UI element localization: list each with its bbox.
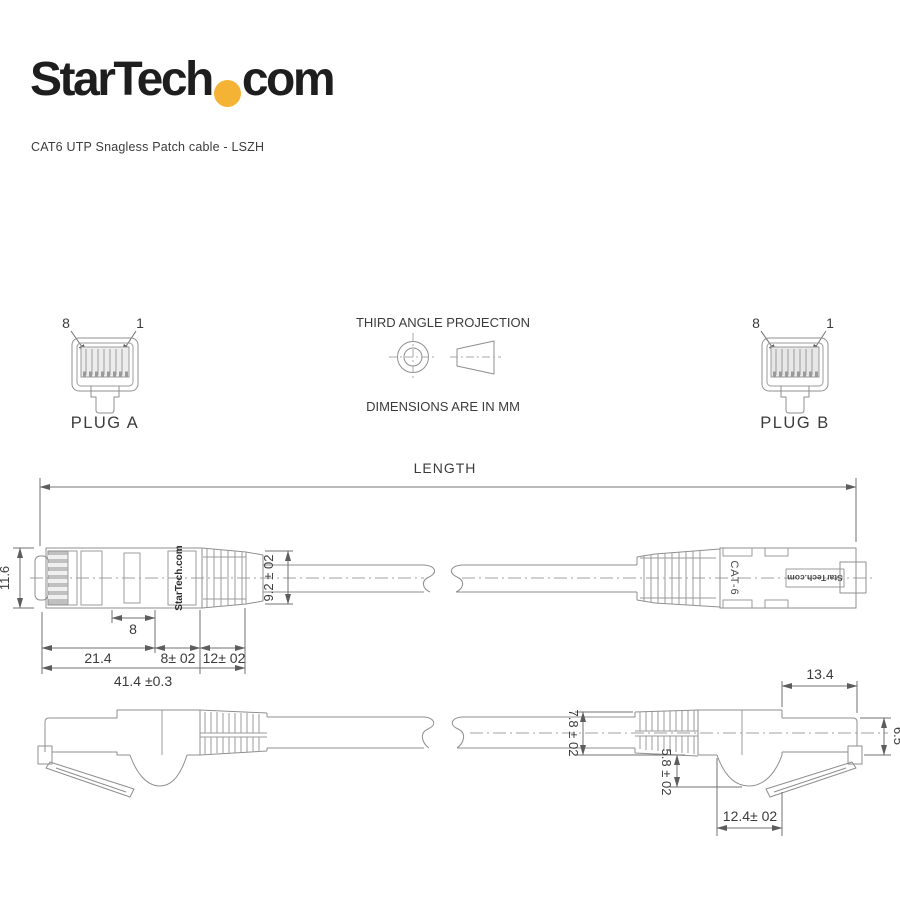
dim-latch-window: 8 bbox=[112, 610, 155, 653]
plug-b-side-latch-lever bbox=[766, 762, 856, 797]
svg-text:6.5: 6.5 bbox=[891, 727, 900, 745]
plug-b-cat6-marking: CAT-6 bbox=[728, 560, 740, 595]
length-dimension: LENGTH bbox=[40, 460, 856, 546]
svg-text:12± 02: 12± 02 bbox=[203, 650, 246, 666]
plug-b-side-boot-ribs bbox=[635, 711, 698, 755]
length-label: LENGTH bbox=[414, 460, 477, 476]
plug-b-pin1-label: 1 bbox=[826, 315, 834, 331]
svg-text:11.6: 11.6 bbox=[0, 566, 12, 590]
projection-symbol: THIRD ANGLE PROJECTION DIMENSIONS ARE IN… bbox=[356, 315, 530, 414]
dim-connector-height: 11.6 bbox=[0, 548, 34, 608]
dim-overall-length: 41.4 ±0.3 bbox=[42, 668, 245, 689]
svg-text:41.4 ±0.3: 41.4 ±0.3 bbox=[114, 673, 172, 689]
plug-b-pin8-label: 8 bbox=[752, 315, 760, 331]
projection-crosshair bbox=[389, 333, 437, 381]
top-cable-break-left bbox=[423, 565, 434, 592]
dim-nose-height: 6.5 bbox=[860, 718, 900, 755]
svg-text:8: 8 bbox=[129, 621, 137, 637]
plug-a-brand-marking: StarTech.com bbox=[174, 545, 185, 610]
side-view-drawing: 7.8 ± 02 5.8 ± 02 12.4± 02 13.4 6.5 bbox=[38, 666, 900, 836]
svg-text:5.8 ± 02: 5.8 ± 02 bbox=[659, 749, 674, 796]
length-extension-lines bbox=[40, 478, 856, 546]
dim-hook-width: 12.4± 02 bbox=[717, 758, 782, 836]
side-cable-break-left bbox=[422, 717, 433, 748]
svg-text:9.2 ± 02: 9.2 ± 02 bbox=[261, 555, 276, 602]
dim-boot-section-1: 8± 02 bbox=[155, 648, 200, 666]
plug-a-side-body bbox=[45, 710, 200, 786]
svg-text:13.4: 13.4 bbox=[806, 666, 833, 682]
dim-nose-length: 13.4 bbox=[782, 666, 857, 713]
plug-a-label: PLUG A bbox=[71, 414, 140, 432]
plug-b-latch-tab bbox=[781, 386, 809, 413]
plug-b-label: PLUG B bbox=[760, 414, 830, 432]
plug-a-side-latch-lever bbox=[46, 762, 134, 797]
plug-a-latch-tab bbox=[91, 386, 119, 413]
units-note: DIMENSIONS ARE IN MM bbox=[366, 399, 520, 414]
svg-text:8± 02: 8± 02 bbox=[161, 650, 196, 666]
side-cable-break-right bbox=[452, 717, 463, 748]
plug-a-top-detail-1 bbox=[68, 551, 77, 605]
plug-a-side-boot-ribs bbox=[200, 712, 267, 754]
plug-b-front-view: 8 1 PLUG B bbox=[752, 315, 834, 432]
side-cable-left bbox=[267, 717, 424, 748]
plug-a-pin1-label: 1 bbox=[136, 315, 144, 331]
plug-a-pin8-label: 8 bbox=[62, 315, 70, 331]
plug-a-front-view: 8 1 PLUG A bbox=[62, 315, 144, 432]
svg-text:7.8 ± 02: 7.8 ± 02 bbox=[566, 710, 581, 757]
top-view-drawing: StarTech.com CAT-6 StarTech.com 11.6 8 bbox=[0, 545, 872, 689]
dim-boot-section-2: 12± 02 bbox=[200, 648, 246, 666]
svg-text:12.4± 02: 12.4± 02 bbox=[723, 808, 778, 824]
plug-b-side-latch-tip bbox=[848, 746, 862, 764]
technical-drawing: 8 1 PLUG A THIRD ANGLE PROJECTION DIMENS… bbox=[0, 0, 900, 900]
plug-b-brand-marking: StarTech.com bbox=[787, 573, 843, 583]
svg-text:21.4: 21.4 bbox=[84, 650, 111, 666]
top-cable-break-right bbox=[451, 565, 462, 592]
projection-title: THIRD ANGLE PROJECTION bbox=[356, 315, 530, 330]
